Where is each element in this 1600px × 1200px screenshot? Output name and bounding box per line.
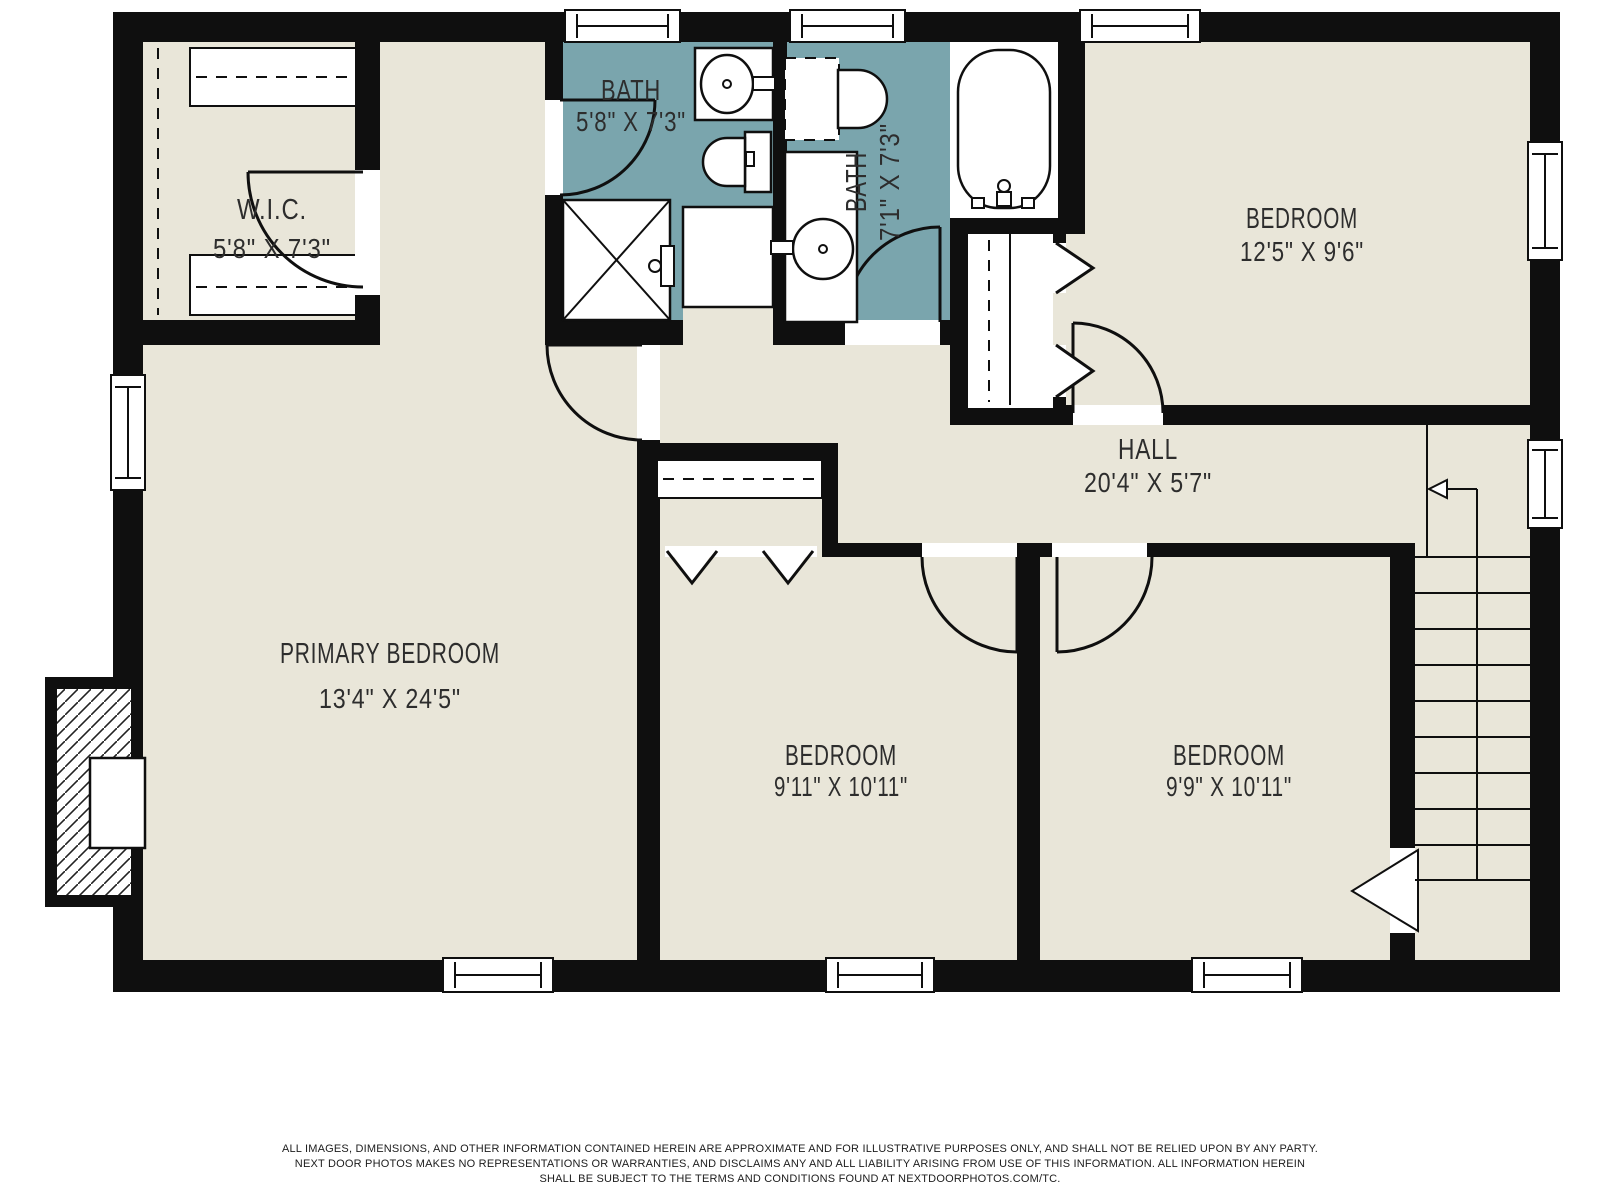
label-hall-dims: 20'4" X 5'7": [1084, 467, 1212, 498]
floor-plan-drawing: W.I.C. 5'8" X 7'3" BATH 5'8" X 7'3" BATH…: [0, 0, 1600, 1200]
window-bath2: [790, 10, 905, 42]
sink: [695, 48, 775, 120]
label-bedroom-mid-dims: 9'11" X 10'11": [774, 771, 908, 802]
window-primary-left: [111, 375, 145, 490]
bathtub: [958, 50, 1050, 208]
label-bedroom-top-name: BEDROOM: [1246, 203, 1358, 235]
label-bedroom-top-dims: 12'5" X 9'6": [1240, 236, 1364, 267]
label-bedroom-mid-name: BEDROOM: [785, 740, 897, 772]
label-bedroom-right-dims: 9'9" X 10'11": [1166, 771, 1292, 802]
label-bath2-name: BATH: [841, 152, 873, 212]
disclaimer-line-1: ALL IMAGES, DIMENSIONS, AND OTHER INFORM…: [282, 1143, 1318, 1155]
window-bedroom-top: [1080, 10, 1200, 42]
bath1-alcove: [683, 307, 773, 320]
label-bath1-name: BATH: [601, 75, 661, 107]
label-wic-name: W.I.C.: [237, 194, 307, 226]
disclaimer-line-2: NEXT DOOR PHOTOS MAKES NO REPRESENTATION…: [295, 1158, 1305, 1170]
cabinet: [683, 207, 773, 307]
label-primary-name: PRIMARY BEDROOM: [280, 638, 500, 670]
window-bath1: [565, 10, 680, 42]
label-primary-dims: 13'4" X 24'5": [319, 683, 461, 714]
label-bedroom-right-name: BEDROOM: [1173, 740, 1285, 772]
window-primary-bottom: [443, 958, 553, 992]
window-bedroom-mid: [826, 958, 934, 992]
label-hall-name: HALL: [1118, 434, 1178, 466]
window-bedroom-top-right: [1528, 142, 1562, 260]
toilet: [703, 132, 771, 192]
label-bath1-dims: 5'8" X 7'3": [576, 106, 686, 137]
floor-plan-page: W.I.C. 5'8" X 7'3" BATH 5'8" X 7'3" BATH…: [0, 0, 1600, 1200]
disclaimer-line-3: SHALL BE SUBJECT TO THE TERMS AND CONDIT…: [539, 1173, 1060, 1185]
label-bath2-dims: 7'1" X 7'3": [874, 123, 905, 241]
window-bedroom-right: [1192, 958, 1302, 992]
disclaimer: ALL IMAGES, DIMENSIONS, AND OTHER INFORM…: [282, 1143, 1318, 1185]
shower: [563, 200, 674, 320]
label-wic-dims: 5'8" X 7'3": [213, 233, 331, 264]
window-stairs: [1528, 440, 1562, 528]
